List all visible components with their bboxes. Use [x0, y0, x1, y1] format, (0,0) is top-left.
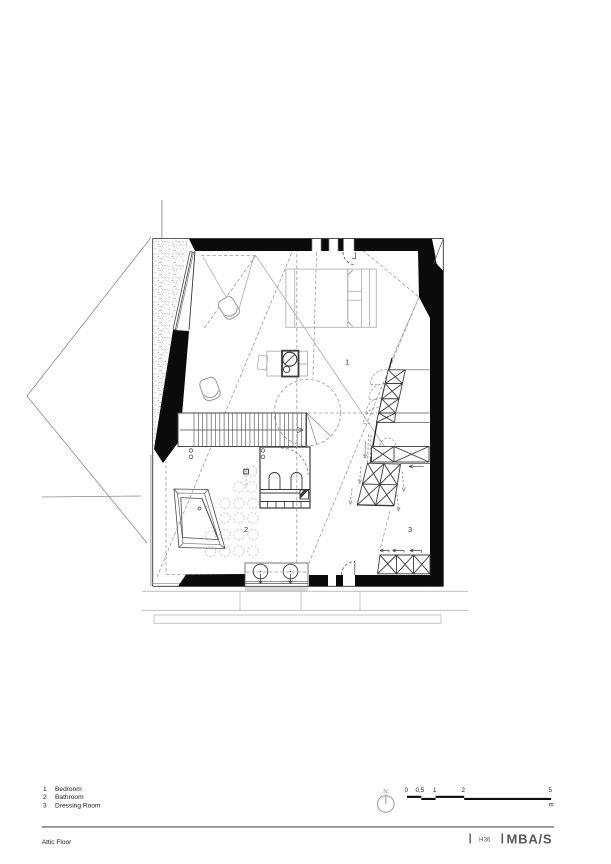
svg-text:2: 2 — [43, 794, 47, 801]
svg-text:1: 1 — [433, 787, 437, 794]
svg-text:m: m — [549, 802, 554, 809]
svg-text:N: N — [383, 789, 387, 796]
svg-text:0: 0 — [405, 787, 409, 794]
svg-text:2: 2 — [462, 787, 466, 794]
svg-text:5: 5 — [549, 787, 553, 794]
svg-text:1: 1 — [43, 786, 47, 793]
svg-text:2: 2 — [244, 525, 248, 534]
svg-text:Attic Floor: Attic Floor — [42, 839, 72, 846]
svg-text:H36: H36 — [479, 837, 491, 844]
svg-text:3: 3 — [43, 802, 47, 809]
svg-text:Dressing Room: Dressing Room — [55, 802, 101, 809]
svg-text:Bathroom: Bathroom — [55, 794, 84, 801]
svg-text:Bedroom: Bedroom — [55, 786, 82, 793]
svg-text:3: 3 — [408, 525, 412, 534]
svg-text:0,5: 0,5 — [416, 787, 425, 794]
svg-text:1: 1 — [345, 358, 349, 367]
svg-text:MBA/S: MBA/S — [507, 832, 553, 847]
